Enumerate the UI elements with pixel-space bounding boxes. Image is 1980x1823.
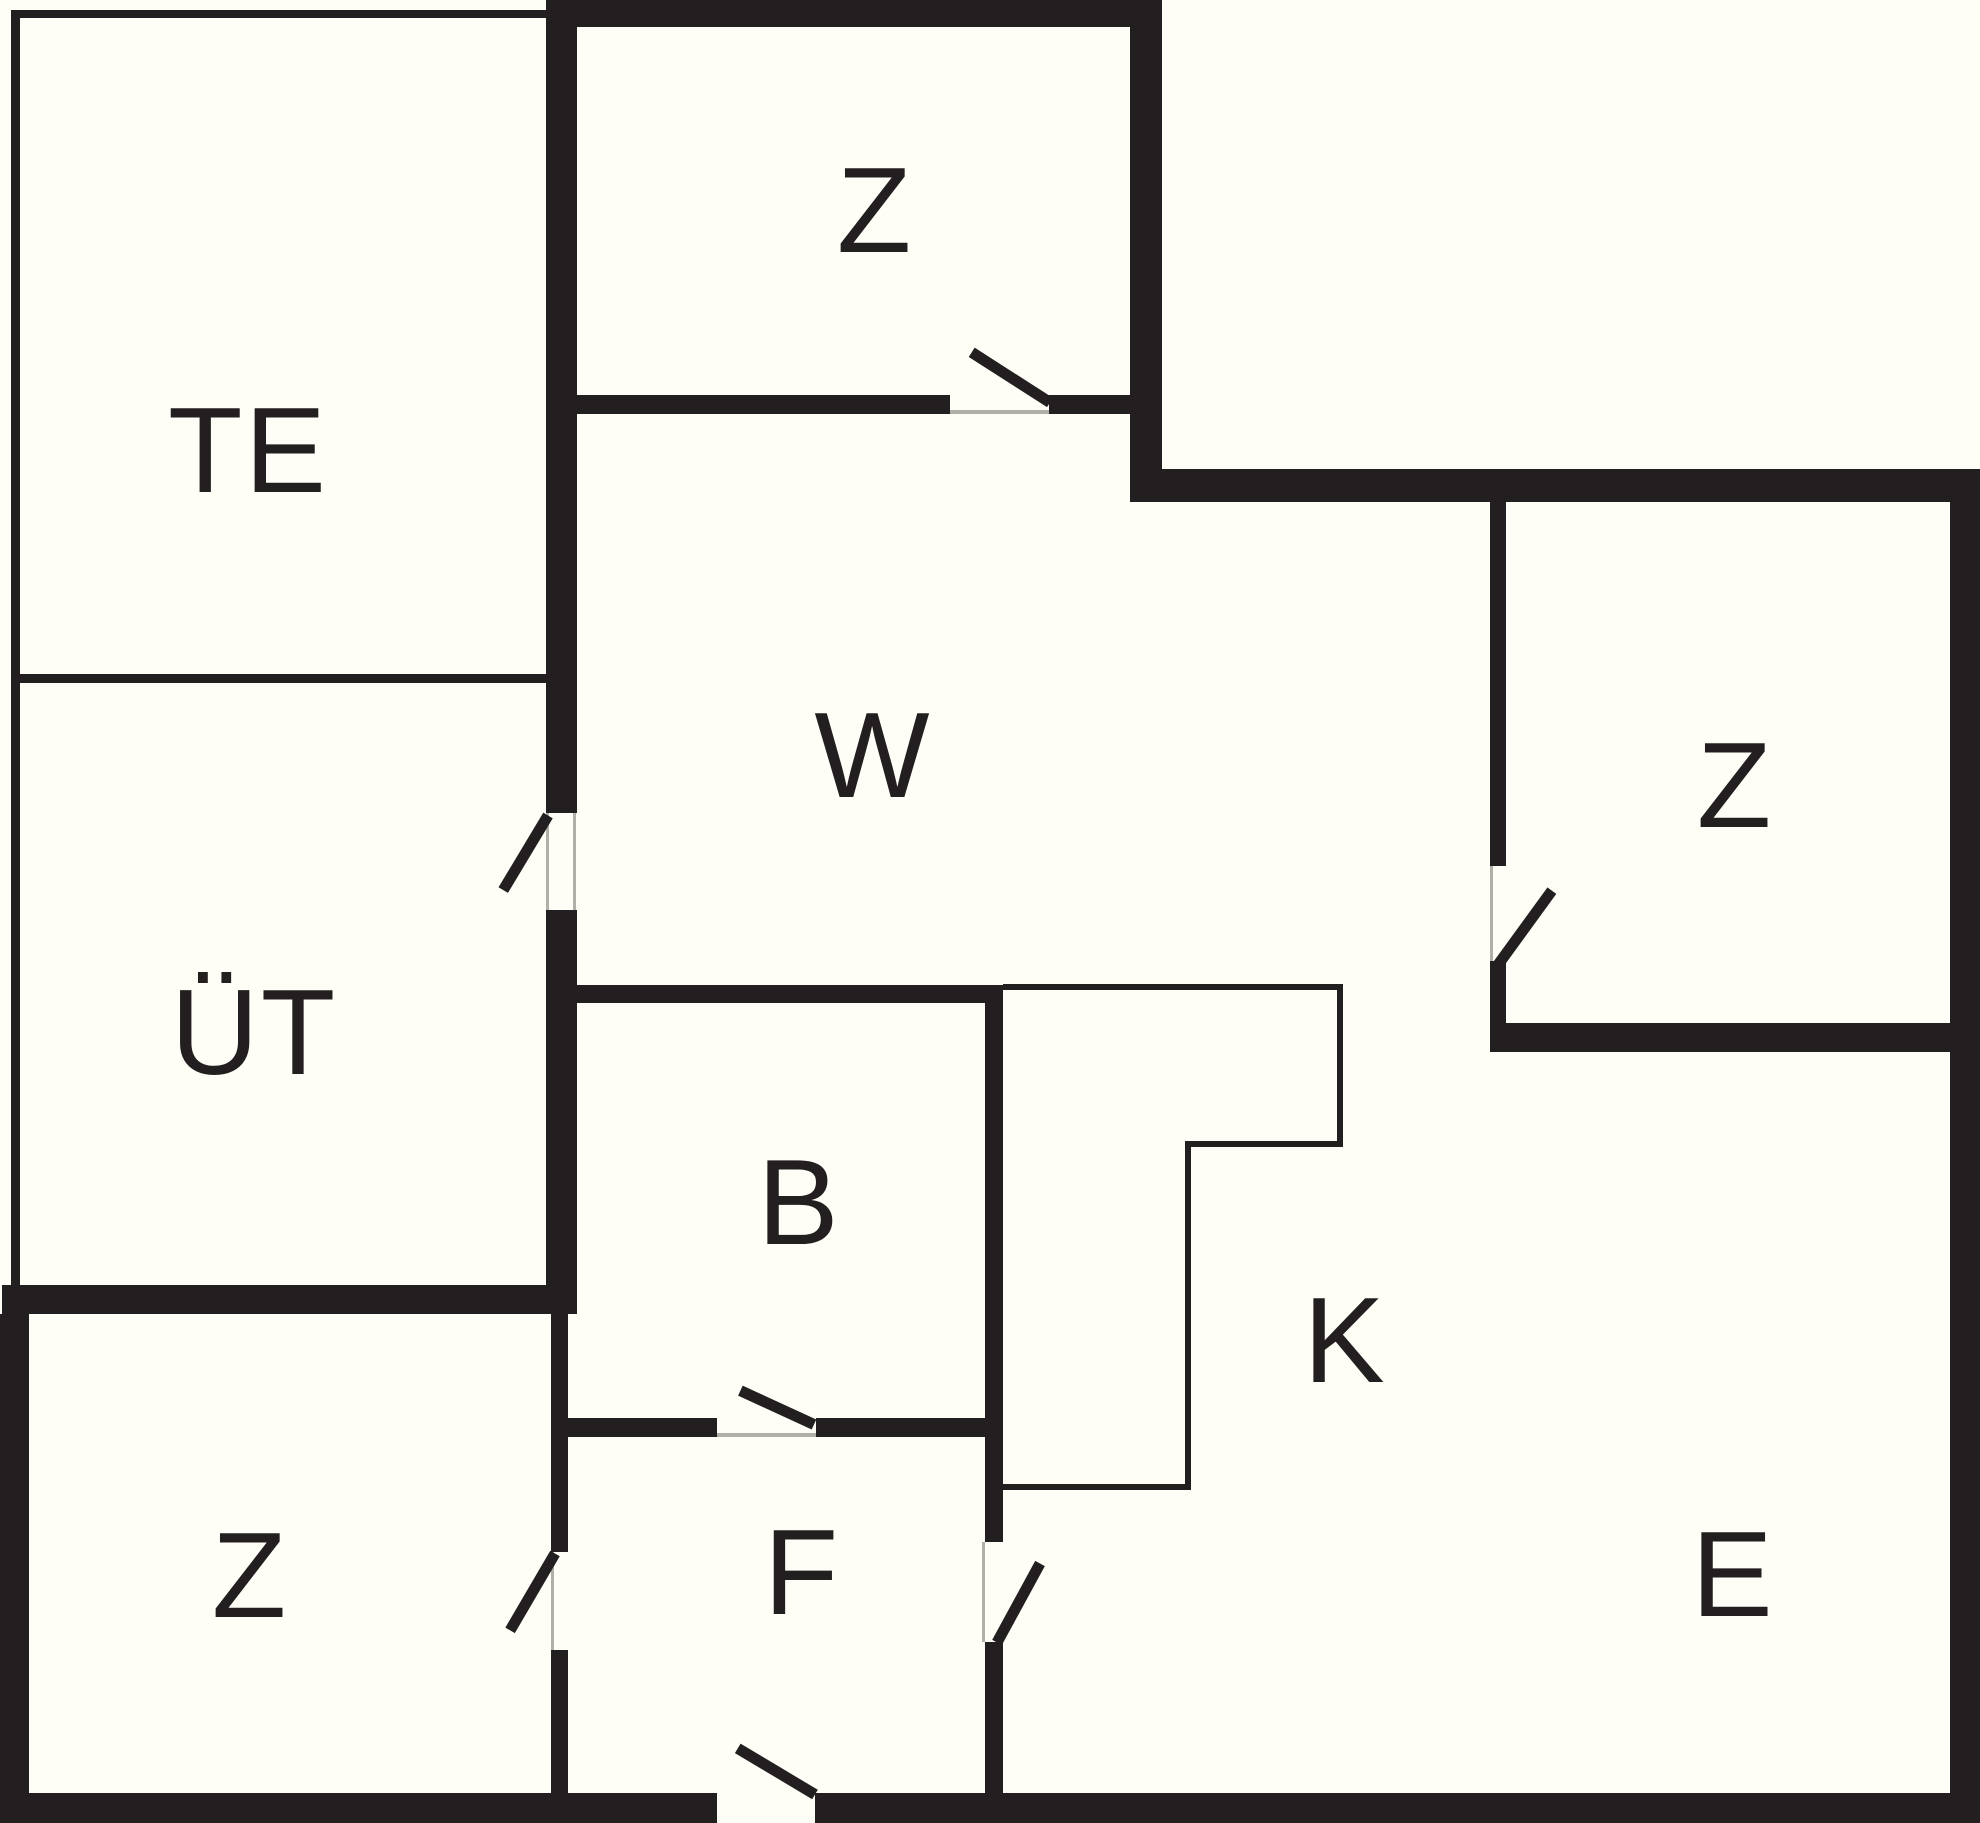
room-label-ut: ÜT xyxy=(171,971,338,1093)
room-label-b: B xyxy=(757,1141,840,1263)
wall-b-bottom-left xyxy=(568,1418,717,1437)
counter-line-bottom xyxy=(997,1484,1191,1490)
outer-wall-top xyxy=(546,0,1162,27)
outer-wall-left-bottom xyxy=(0,1314,29,1823)
room-label-w: W xyxy=(814,694,931,816)
wall-b-right xyxy=(985,985,1003,1542)
terrace-line-top xyxy=(11,10,546,18)
room-label-z-bottom: Z xyxy=(212,1514,289,1636)
wall-w-left-lower xyxy=(546,910,577,1314)
wall-ztop-bottom-left xyxy=(577,395,950,414)
room-label-te: TE xyxy=(168,389,328,511)
room-label-e: E xyxy=(1691,1513,1774,1635)
counter-line-top xyxy=(1003,984,1343,990)
wall-ut-bottom xyxy=(2,1285,577,1314)
doorgap-edge-zright xyxy=(1490,866,1493,961)
door-swing-entrance xyxy=(735,1743,818,1798)
wall-ztop-bottom-right xyxy=(1049,395,1130,414)
wall-zbottom-f-lower xyxy=(551,1650,568,1793)
wall-zbottom-f-upper xyxy=(551,1314,568,1552)
floorplan: TEZWZÜTBKZFE xyxy=(0,0,1980,1823)
counter-line-mid-h xyxy=(1185,1141,1343,1147)
door-swing-b xyxy=(738,1385,817,1429)
counter-line-mid-v xyxy=(1185,1141,1191,1490)
wall-b-top xyxy=(577,985,1003,1003)
outer-wall-bottom-left xyxy=(0,1793,717,1823)
room-label-k: K xyxy=(1303,1279,1386,1401)
doorgap-edge-fk xyxy=(982,1542,985,1642)
door-swing-ztop xyxy=(969,347,1053,406)
terrace-line-te-ut xyxy=(11,674,551,683)
outer-wall-right xyxy=(1950,469,1980,1823)
wall-te-ztop xyxy=(546,0,577,813)
outer-wall-topright xyxy=(1130,469,1980,502)
wall-f-right-lower xyxy=(985,1642,1003,1793)
counter-line-right xyxy=(1337,984,1343,1147)
outer-wall-bottom-right xyxy=(815,1793,1980,1823)
door-swing-fk xyxy=(992,1560,1045,1644)
room-label-f: F xyxy=(764,1511,841,1633)
room-label-z-right: Z xyxy=(1697,724,1774,846)
doorgap-edge-b xyxy=(717,1433,816,1437)
wall-b-bottom-right xyxy=(816,1418,1003,1437)
door-swing-zright xyxy=(1492,887,1557,970)
doorgap-edge-ut-right xyxy=(573,813,576,910)
wall-zright-left-upper xyxy=(1490,502,1506,866)
wall-ztop-right xyxy=(1130,0,1162,502)
room-label-z-top: Z xyxy=(837,149,914,271)
wall-zright-bottom xyxy=(1490,1023,1950,1052)
door-swing-ut xyxy=(498,812,552,893)
doorgap-edge-ztop xyxy=(950,410,1049,414)
terrace-line-left xyxy=(11,10,20,1285)
